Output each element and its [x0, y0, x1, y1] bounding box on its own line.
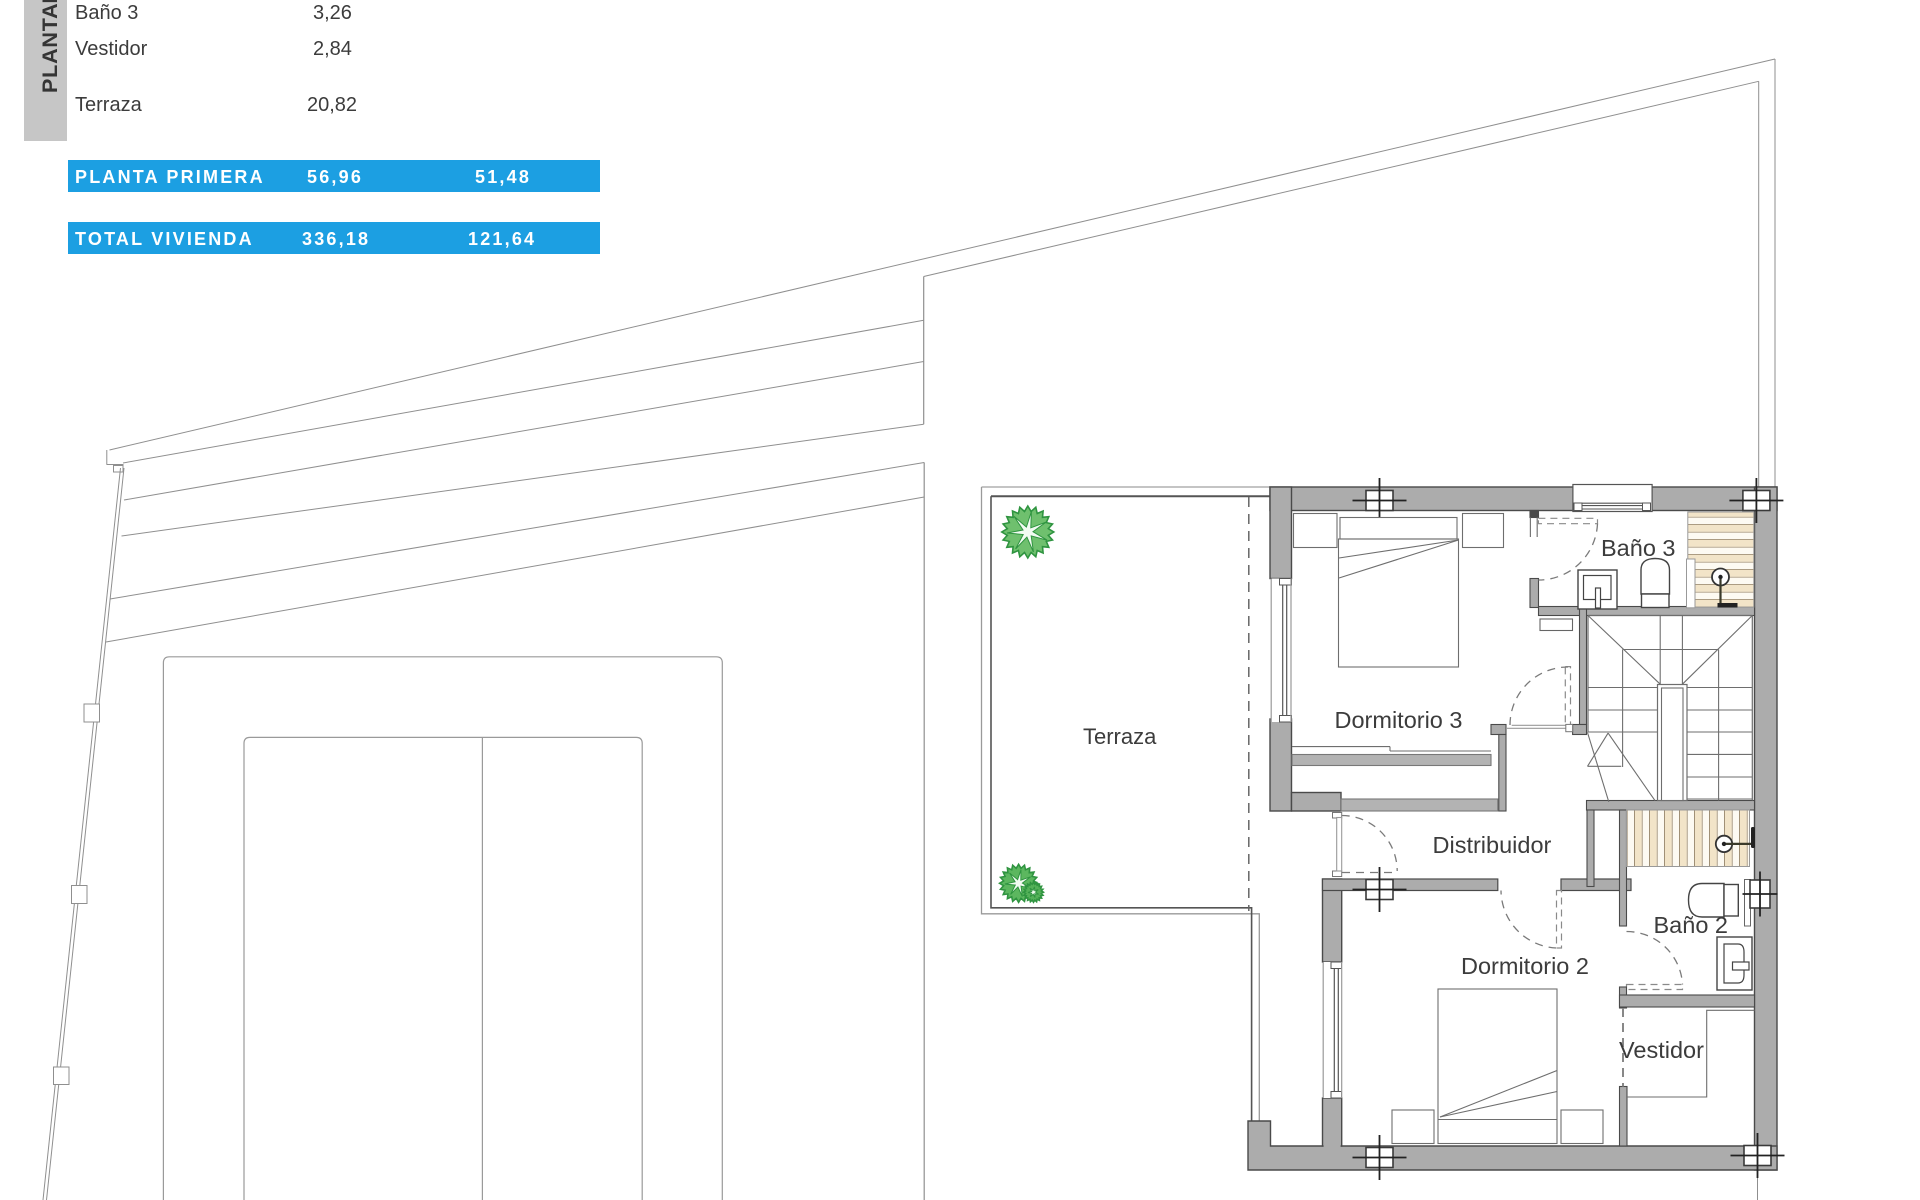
svg-text:Baño 2: Baño 2 — [1654, 912, 1728, 938]
svg-text:Distribuidor: Distribuidor — [1433, 832, 1552, 858]
svg-text:Vestidor: Vestidor — [1619, 1037, 1704, 1063]
svg-text:Baño 3: Baño 3 — [1601, 535, 1675, 561]
svg-text:Terraza: Terraza — [1083, 724, 1157, 749]
svg-text:PLANTA: PLANTA — [38, 3, 62, 93]
svg-text:P: P — [38, 0, 62, 4]
svg-text:Dormitorio 2: Dormitorio 2 — [1461, 953, 1589, 979]
svg-text:Dormitorio 3: Dormitorio 3 — [1335, 707, 1463, 733]
